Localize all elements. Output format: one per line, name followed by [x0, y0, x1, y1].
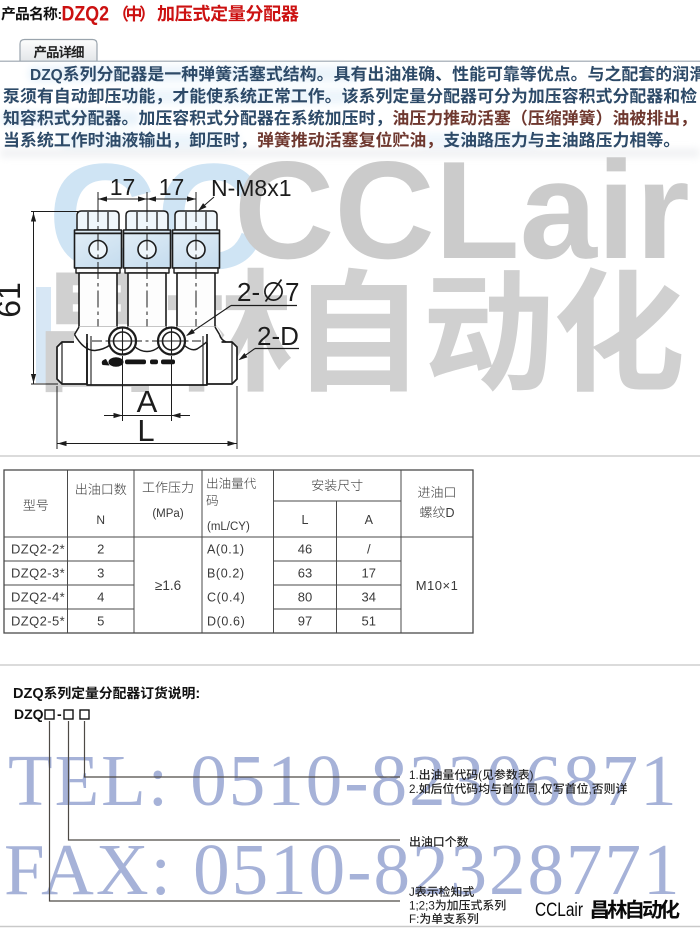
svg-text:,: ,: [538, 783, 541, 796]
svg-text:2-: 2-: [237, 277, 260, 307]
svg-text:4: 4: [97, 590, 104, 605]
svg-text:B(0.2): B(0.2): [207, 567, 245, 581]
svg-text:2: 2: [97, 542, 104, 557]
svg-text:DZQ: DZQ: [14, 706, 44, 722]
svg-text:(MPa): (MPa): [152, 508, 183, 520]
svg-text:61: 61: [0, 282, 27, 318]
svg-text:/: /: [367, 542, 371, 557]
svg-text:7: 7: [285, 277, 299, 307]
svg-text:L: L: [302, 513, 309, 527]
svg-text:DZQ: DZQ: [13, 686, 44, 702]
svg-text:): ): [530, 769, 534, 782]
svg-text:51: 51: [362, 614, 376, 629]
svg-text:DZQ2-5*: DZQ2-5*: [11, 614, 65, 629]
svg-text:A(0.1): A(0.1): [207, 543, 245, 557]
svg-text:DZQ2-4*: DZQ2-4*: [11, 590, 65, 605]
svg-text:1.: 1.: [409, 769, 419, 782]
svg-text:J: J: [409, 886, 415, 899]
svg-text:C(0.4): C(0.4): [207, 591, 245, 605]
svg-text:CCLair: CCLair: [234, 133, 690, 288]
svg-text:3: 3: [97, 566, 104, 581]
svg-text:D(0.6): D(0.6): [207, 615, 245, 629]
svg-text:(mL/CY): (mL/CY): [207, 521, 250, 533]
svg-text:DZQ: DZQ: [30, 67, 63, 84]
svg-text:2-D: 2-D: [257, 321, 299, 351]
svg-text:M10×1: M10×1: [416, 578, 459, 593]
svg-text:DZQ2-2*: DZQ2-2*: [11, 542, 65, 557]
svg-text:1;2;3: 1;2;3: [409, 900, 435, 913]
svg-text:2.: 2.: [409, 783, 419, 796]
svg-text:F:: F:: [409, 913, 419, 926]
svg-text:46: 46: [298, 542, 312, 557]
svg-text:-: -: [57, 706, 62, 722]
svg-text::: :: [195, 686, 200, 702]
svg-text:DZQ2: DZQ2: [62, 3, 110, 26]
svg-text:80: 80: [298, 590, 312, 605]
svg-text:,: ,: [589, 783, 592, 796]
svg-text:≥1.6: ≥1.6: [155, 578, 181, 593]
svg-text:FAX: 0510-82328771: FAX: 0510-82328771: [4, 829, 681, 910]
svg-text:N: N: [96, 513, 105, 527]
svg-text:DZQ2-3*: DZQ2-3*: [11, 566, 65, 581]
svg-text:17: 17: [110, 174, 136, 200]
svg-text:CCLair: CCLair: [535, 899, 583, 921]
svg-text:TEL: 0510-82306871: TEL: 0510-82306871: [8, 740, 679, 821]
svg-text:34: 34: [362, 590, 376, 605]
svg-text:97: 97: [298, 614, 312, 629]
svg-text:63: 63: [298, 566, 312, 581]
svg-text:L: L: [137, 413, 154, 448]
svg-text:17: 17: [159, 174, 185, 200]
svg-text:A: A: [365, 513, 374, 527]
svg-text:(: (: [478, 769, 482, 782]
svg-text:D: D: [446, 506, 455, 520]
svg-text:N-M8x1: N-M8x1: [211, 175, 292, 201]
svg-text:17: 17: [362, 566, 376, 581]
svg-text:5: 5: [97, 614, 104, 629]
